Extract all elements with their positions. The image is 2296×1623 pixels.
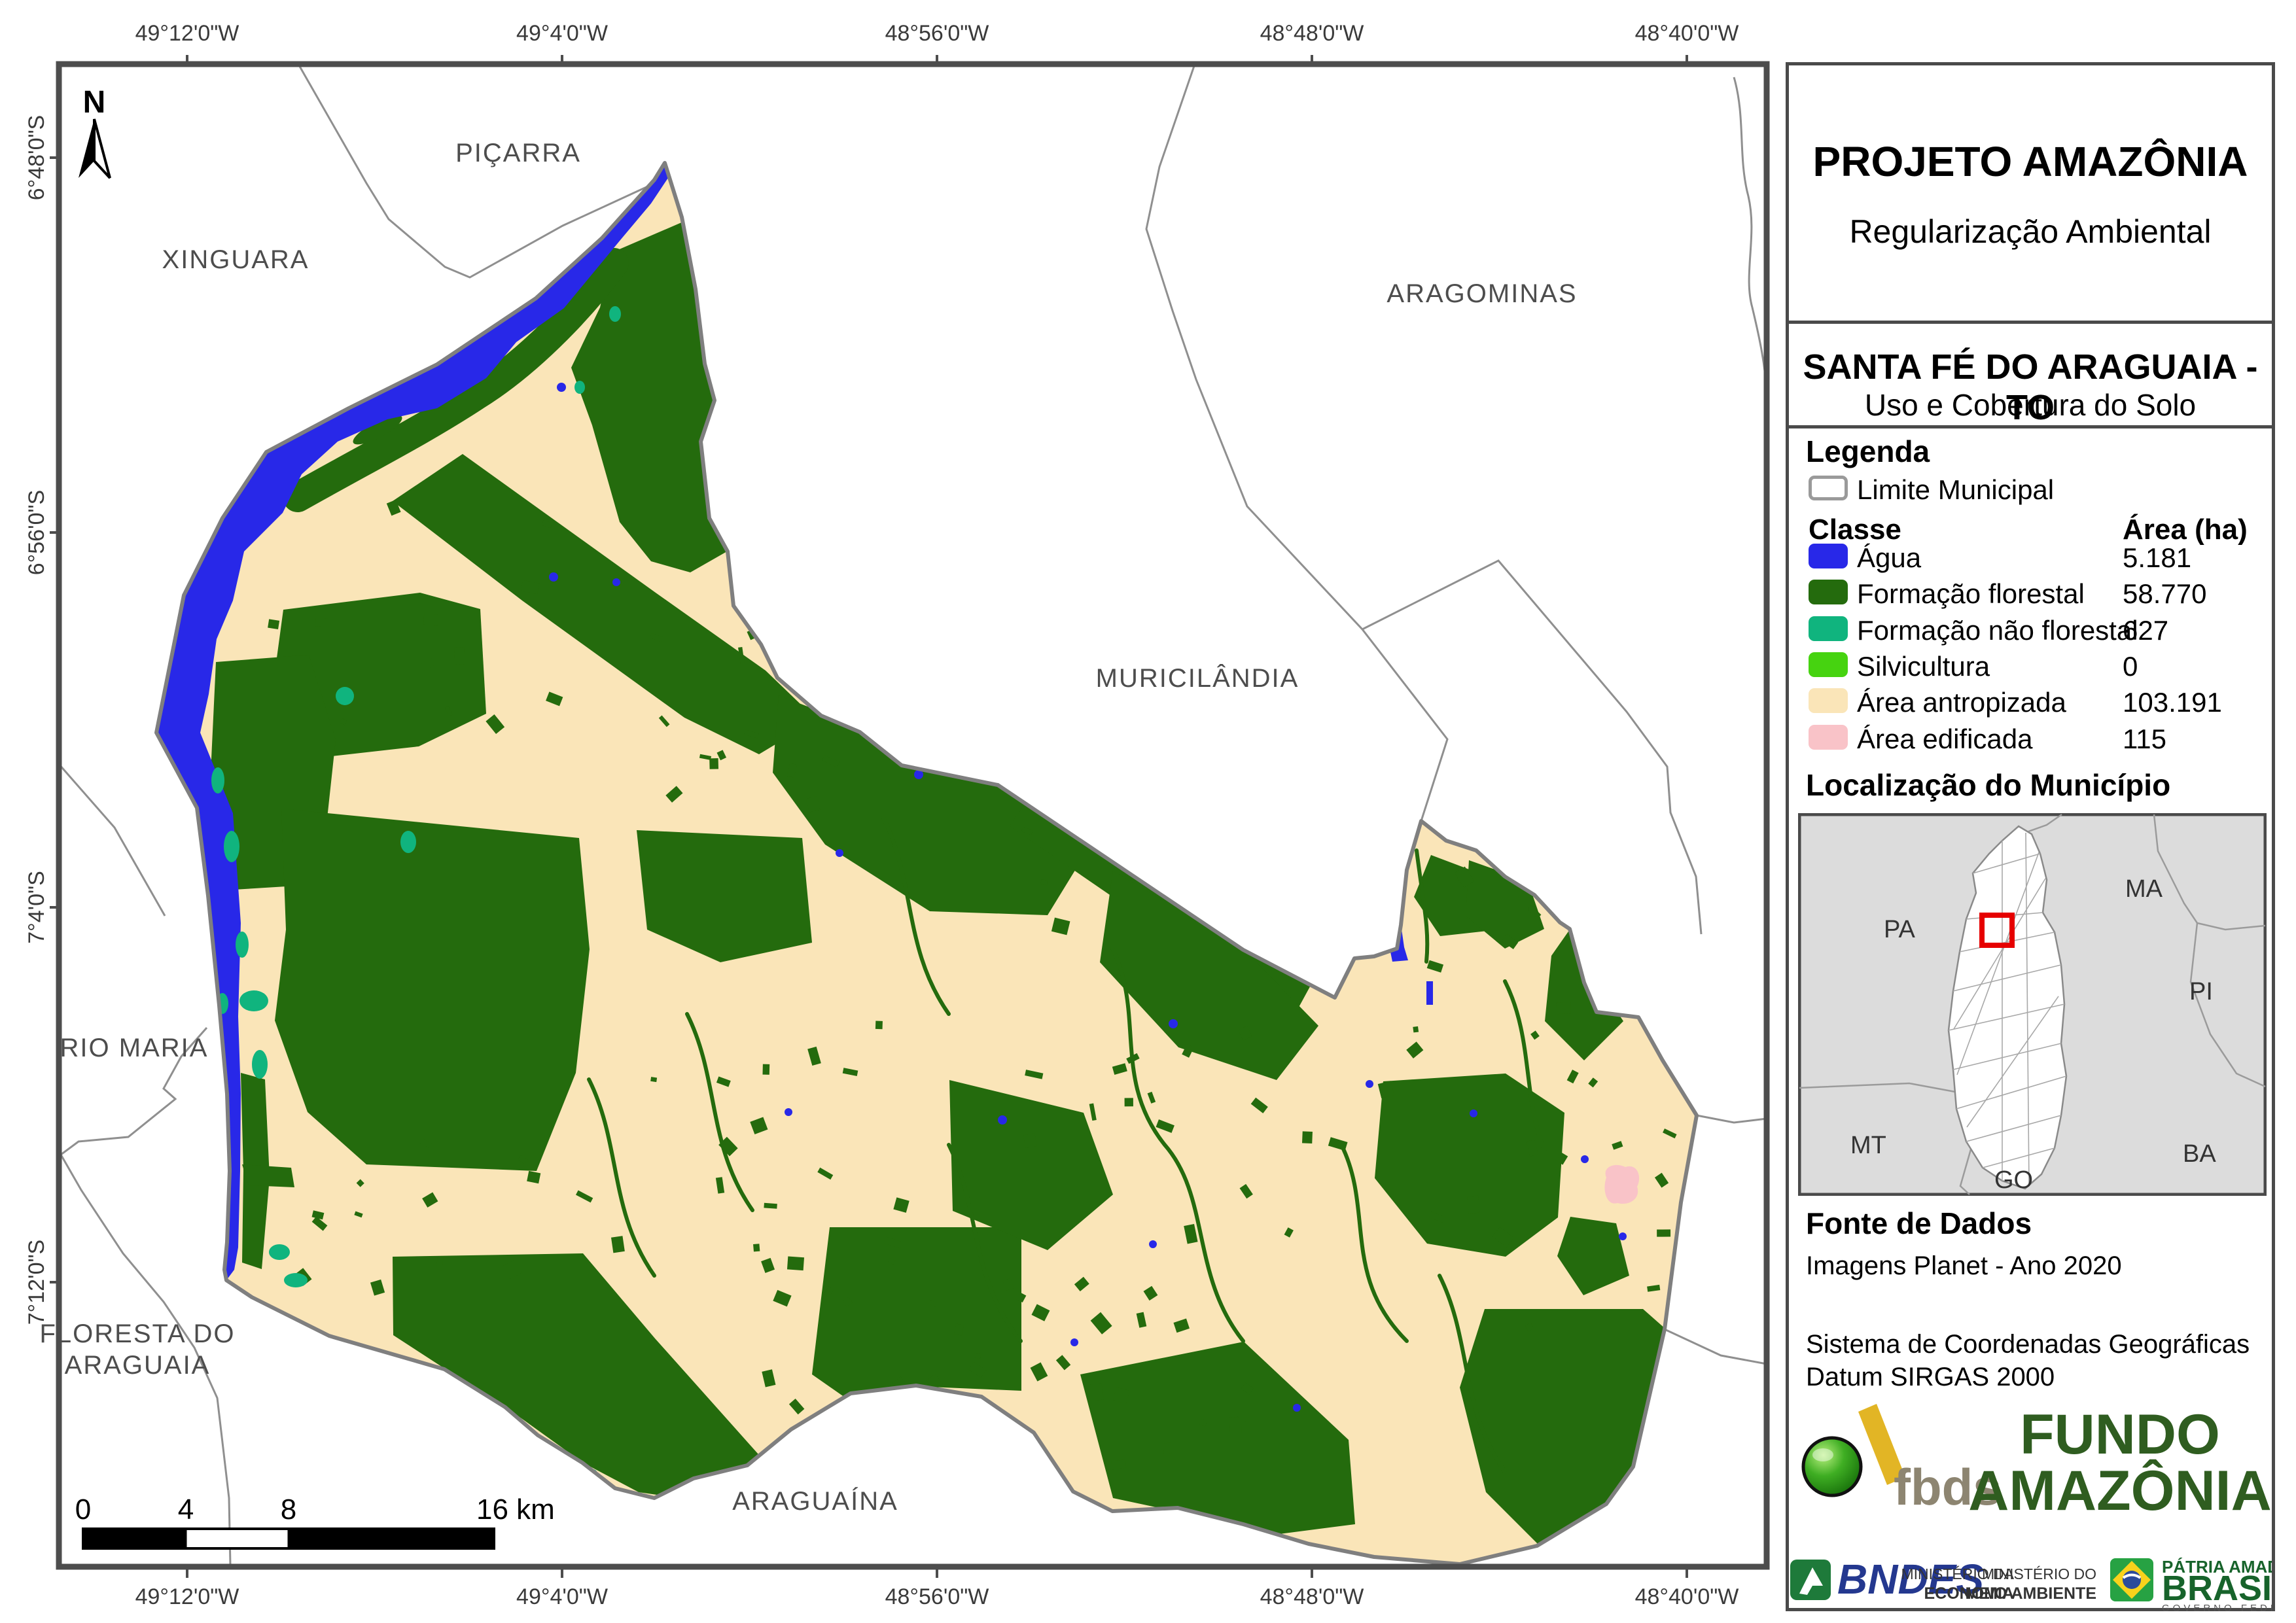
divider bbox=[1789, 425, 2272, 428]
svg-text:6°48'0"S: 6°48'0"S bbox=[24, 115, 49, 200]
svg-text:GOVERNO FEDERAL: GOVERNO FEDERAL bbox=[2162, 1603, 2272, 1613]
legend-swatch bbox=[1809, 544, 1848, 568]
legend-row-florestal: Formação florestal 58.770 bbox=[1806, 577, 2257, 610]
legend-row-nao-florestal: Formação não florestal 627 bbox=[1806, 614, 2257, 646]
source-line-datum: Datum SIRGAS 2000 bbox=[1806, 1363, 2055, 1392]
svg-text:48°40'0"W: 48°40'0"W bbox=[1635, 21, 1739, 46]
svg-text:BRASIL: BRASIL bbox=[2162, 1569, 2272, 1608]
legend-swatch bbox=[1809, 580, 1848, 604]
limite-label: Limite Municipal bbox=[1857, 474, 2054, 506]
legend-swatch bbox=[1809, 652, 1848, 677]
label-picarra: PIÇARRA bbox=[455, 139, 581, 167]
svg-text:16 km: 16 km bbox=[476, 1493, 555, 1526]
legend-swatch bbox=[1809, 688, 1848, 713]
svg-text:0: 0 bbox=[75, 1493, 91, 1526]
legend-swatch bbox=[1809, 616, 1848, 641]
sponsor-logos-bottom: BNDES MINISTÉRIO DA ECONOMIA MINISTÉRIO … bbox=[1789, 1550, 2272, 1613]
source-line-crs: Sistema de Coordenadas Geográficas bbox=[1806, 1330, 2250, 1359]
limite-swatch bbox=[1809, 476, 1848, 500]
label-aragominas: ARAGOMINAS bbox=[1386, 279, 1577, 308]
label-floresta-do: FLORESTA DO bbox=[39, 1319, 235, 1348]
svg-text:FUNDO: FUNDO bbox=[2020, 1403, 2220, 1466]
svg-text:PI: PI bbox=[2189, 978, 2213, 1005]
legend-swatch bbox=[1809, 725, 1848, 750]
svg-text:BA: BA bbox=[2183, 1140, 2216, 1168]
svg-text:48°48'0"W: 48°48'0"W bbox=[1260, 21, 1364, 46]
urban-area-spot bbox=[1604, 1165, 1639, 1204]
svg-text:MT: MT bbox=[1850, 1132, 1886, 1159]
svg-text:49°12'0"W: 49°12'0"W bbox=[135, 21, 239, 46]
svg-text:7°12'0"S: 7°12'0"S bbox=[24, 1240, 49, 1325]
sponsor-logos-top: fbds FUNDO AMAZÔNIA bbox=[1795, 1400, 2272, 1521]
svg-text:MINISTÉRIO DO: MINISTÉRIO DO bbox=[1982, 1565, 2096, 1582]
fundo-amazonia-logo: FUNDO AMAZÔNIA bbox=[1968, 1403, 2271, 1521]
legend-header-row: Classe Área (ha) bbox=[1806, 512, 2257, 545]
ministerio-meio-ambiente-logo: MINISTÉRIO DO MEIO AMBIENTE bbox=[1966, 1565, 2096, 1603]
svg-text:48°56'0"W: 48°56'0"W bbox=[885, 21, 989, 46]
svg-text:48°48'0"W: 48°48'0"W bbox=[1260, 1584, 1364, 1609]
svg-text:PA: PA bbox=[1884, 916, 1916, 943]
label-araguaia: ARAGUAIA bbox=[65, 1351, 211, 1380]
svg-text:49°4'0"W: 49°4'0"W bbox=[516, 1584, 608, 1609]
svg-text:AMAZÔNIA: AMAZÔNIA bbox=[1968, 1459, 2271, 1521]
source-line-imagery: Imagens Planet - Ano 2020 bbox=[1806, 1251, 2122, 1281]
legend-row-silvicultura: Silvicultura 0 bbox=[1806, 650, 2257, 682]
project-title: PROJETO AMAZÔNIA bbox=[1789, 137, 2272, 186]
legend-heading: Legenda bbox=[1806, 434, 1930, 469]
legend-limite-row: Limite Municipal bbox=[1806, 473, 2257, 506]
inset-heading: Localização do Município bbox=[1806, 767, 2170, 803]
map-type-title: Uso e Cobertura do Solo bbox=[1789, 387, 2272, 423]
source-heading: Fonte de Dados bbox=[1806, 1206, 2032, 1241]
divider bbox=[1789, 321, 2272, 324]
svg-text:7°4'0"S: 7°4'0"S bbox=[24, 871, 49, 944]
patria-amada-brasil-logo: PÁTRIA AMADA BRASIL GOVERNO FEDERAL bbox=[2110, 1557, 2272, 1613]
svg-text:GO: GO bbox=[1994, 1166, 2033, 1194]
svg-text:49°12'0"W: 49°12'0"W bbox=[135, 1584, 239, 1609]
legend-row-antropizada: Área antropizada 103.191 bbox=[1806, 686, 2257, 718]
svg-text:MA: MA bbox=[2125, 875, 2163, 903]
locator-inset-map: PA MA PI MT BA GO bbox=[1798, 813, 2267, 1196]
legend-row-edificada: Área edificada 115 bbox=[1806, 722, 2257, 755]
svg-text:8: 8 bbox=[281, 1493, 296, 1526]
legend-row-agua: Água 5.181 bbox=[1806, 541, 2257, 574]
svg-text:4: 4 bbox=[178, 1493, 194, 1526]
svg-text:MEIO AMBIENTE: MEIO AMBIENTE bbox=[1966, 1584, 2096, 1603]
svg-text:48°56'0"W: 48°56'0"W bbox=[885, 1584, 989, 1609]
svg-text:49°4'0"W: 49°4'0"W bbox=[516, 21, 608, 46]
map-document: XINGUARA PIÇARRA ARAGOMINAS MURICILÂNDIA… bbox=[0, 0, 2296, 1623]
label-rio-maria: RIO MARIA bbox=[60, 1034, 209, 1062]
svg-text:N: N bbox=[83, 85, 106, 120]
project-subtitle: Regularização Ambiental bbox=[1789, 213, 2272, 251]
info-panel: PROJETO AMAZÔNIA Regularização Ambiental… bbox=[1786, 62, 2275, 1611]
svg-text:48°40'0"W: 48°40'0"W bbox=[1635, 1584, 1739, 1609]
label-araguaina: ARAGUAÍNA bbox=[732, 1486, 898, 1516]
svg-text:6°56'0"S: 6°56'0"S bbox=[24, 490, 49, 575]
label-muricilandia: MURICILÂNDIA bbox=[1096, 663, 1299, 693]
label-xinguara: XINGUARA bbox=[162, 245, 309, 274]
